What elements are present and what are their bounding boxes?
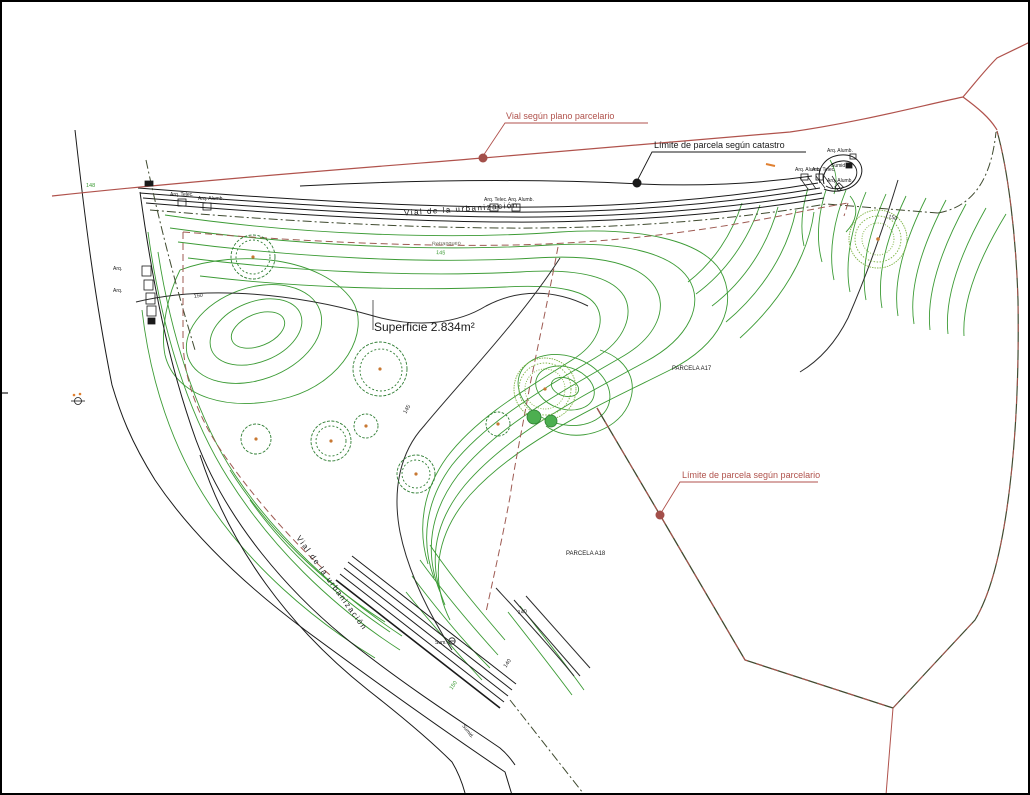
utility-labels: Arq. Telec. Arq. Alumb. Arq. Telec. Arq.…	[113, 148, 853, 739]
curb-line	[352, 556, 516, 684]
contour-line	[712, 207, 778, 306]
contour-line	[964, 214, 1006, 336]
dot-parcelario	[656, 511, 665, 520]
contour-line	[508, 612, 572, 695]
arqueta-box	[147, 306, 156, 316]
tree-group-light	[514, 210, 907, 420]
contour-line	[178, 242, 660, 592]
curb-line	[336, 580, 500, 708]
contour-loop	[226, 305, 290, 356]
contour-line	[188, 258, 628, 578]
label-arq-telec: Arq. Telec.	[484, 197, 508, 203]
boundary-red-south	[886, 708, 893, 795]
label-retranqueo: Retranqueo	[432, 241, 461, 248]
label-parcela-a18: PARCELA A18	[566, 551, 606, 557]
tree-center-dot	[876, 237, 880, 241]
label-superficie: Superficie 2.834m²	[374, 320, 475, 334]
tree-center-dot	[251, 255, 254, 258]
label-sumid: Sumid.	[460, 724, 474, 740]
orange-tick	[766, 164, 775, 166]
red-line	[963, 42, 1030, 97]
contour-line	[913, 200, 946, 324]
arqueta-box	[203, 203, 211, 210]
leader-catastro	[637, 152, 806, 181]
arqueta-box	[142, 266, 151, 276]
contour-line	[819, 190, 826, 262]
tree-center-dot	[364, 424, 367, 427]
catastro-segment	[938, 132, 996, 213]
label-arq-telec: Arq. Telec.	[170, 192, 194, 198]
label-limite-parcelario: Límite de parcela según parcelario	[682, 470, 820, 480]
shrub	[527, 410, 541, 424]
marker-filled	[145, 181, 153, 186]
dot-vial-parcelario	[479, 154, 488, 163]
trees	[231, 210, 907, 493]
shrub	[545, 415, 557, 427]
tree-center-dot	[254, 437, 257, 440]
contour-label: 148	[86, 183, 95, 189]
label-arq-alumb: Arq. Alumb.	[827, 148, 853, 154]
contour-loop	[163, 259, 358, 404]
cul-de-sac-outline	[819, 155, 862, 191]
contour-label: 150	[193, 292, 203, 300]
setback-east	[486, 247, 558, 612]
label-vial-urbanizacion-top: Vial de la urbanización	[404, 201, 519, 218]
curb-line	[340, 574, 504, 702]
benchmark-orange-dot	[73, 394, 76, 397]
tree-center-dot	[543, 387, 546, 390]
contour-label: 145	[403, 404, 413, 415]
label-limite-catastro: Límite de parcela según catastro	[654, 140, 785, 150]
tree-center-dot	[496, 422, 499, 425]
label-sum: Sum.	[435, 640, 447, 646]
contour-line	[148, 232, 400, 650]
arqueta-box-filled	[148, 318, 155, 324]
sumidero-filled	[846, 163, 852, 168]
label-vial-urbanizacion-left: Vial de la urbanización	[294, 534, 369, 632]
boundary-red-dash-east	[893, 131, 1018, 708]
road-edge	[300, 176, 812, 186]
tree-center-dot	[414, 472, 417, 475]
contour-lines-green	[142, 160, 1006, 695]
benchmark-orange-dot	[79, 393, 82, 396]
index-contours	[136, 180, 898, 676]
label-arq-alumb: Arq. Alumb.	[827, 178, 853, 184]
boundary-red-dash	[597, 408, 893, 708]
contour-label: 150	[449, 680, 459, 691]
label-arq-alumb: Arq. Alumb.	[508, 197, 534, 203]
red-line	[963, 97, 997, 130]
label-arq: Arq.	[113, 288, 122, 294]
label-arq: Arq.	[113, 266, 122, 272]
curb-line	[348, 562, 512, 690]
tree-center-dot	[329, 439, 332, 442]
catastro-segment	[510, 700, 583, 793]
index-contour-150	[136, 293, 588, 323]
contour-label: 140	[517, 609, 527, 616]
label-vial-parcelario: Vial según plano parcelario	[506, 111, 614, 121]
setback-corner	[844, 203, 848, 216]
contour-labels: 150 145 150 140 140 150 148 145	[86, 183, 898, 691]
dot-catastro	[633, 179, 642, 188]
contour-line	[726, 210, 796, 322]
contour-loop	[172, 267, 335, 401]
contour-line	[947, 208, 986, 334]
text-labels: Vial según plano parcelario Límite de pa…	[294, 111, 820, 632]
label-sumid: Sumid.	[831, 163, 847, 169]
contour-label: 145	[436, 250, 446, 257]
contour-line	[420, 560, 498, 655]
site-plan-canvas: Vial según plano parcelario Límite de pa…	[0, 0, 1030, 795]
leader-parcelario	[661, 482, 818, 513]
tree-center-dot	[378, 367, 381, 370]
boundary-dark-east	[893, 131, 1018, 708]
site-plan-svg: Vial según plano parcelario Límite de pa…	[0, 0, 1030, 795]
contour-label: 150	[887, 214, 897, 222]
contour-line	[158, 252, 402, 636]
boundary-dark	[597, 408, 893, 708]
arqueta-box	[144, 280, 153, 290]
index-contour-145	[397, 258, 560, 650]
contour-line	[802, 188, 808, 246]
contour-label: 140	[503, 658, 513, 669]
arqueta-box	[178, 199, 186, 206]
label-arq-alumb: Arq. Alumb.	[198, 196, 224, 202]
contour-line	[740, 212, 814, 338]
label-parcela-a17: PARCELA A17	[672, 366, 712, 372]
contour-line	[880, 196, 906, 308]
boundary-parcelario	[597, 131, 1018, 795]
contour-line	[696, 205, 760, 294]
